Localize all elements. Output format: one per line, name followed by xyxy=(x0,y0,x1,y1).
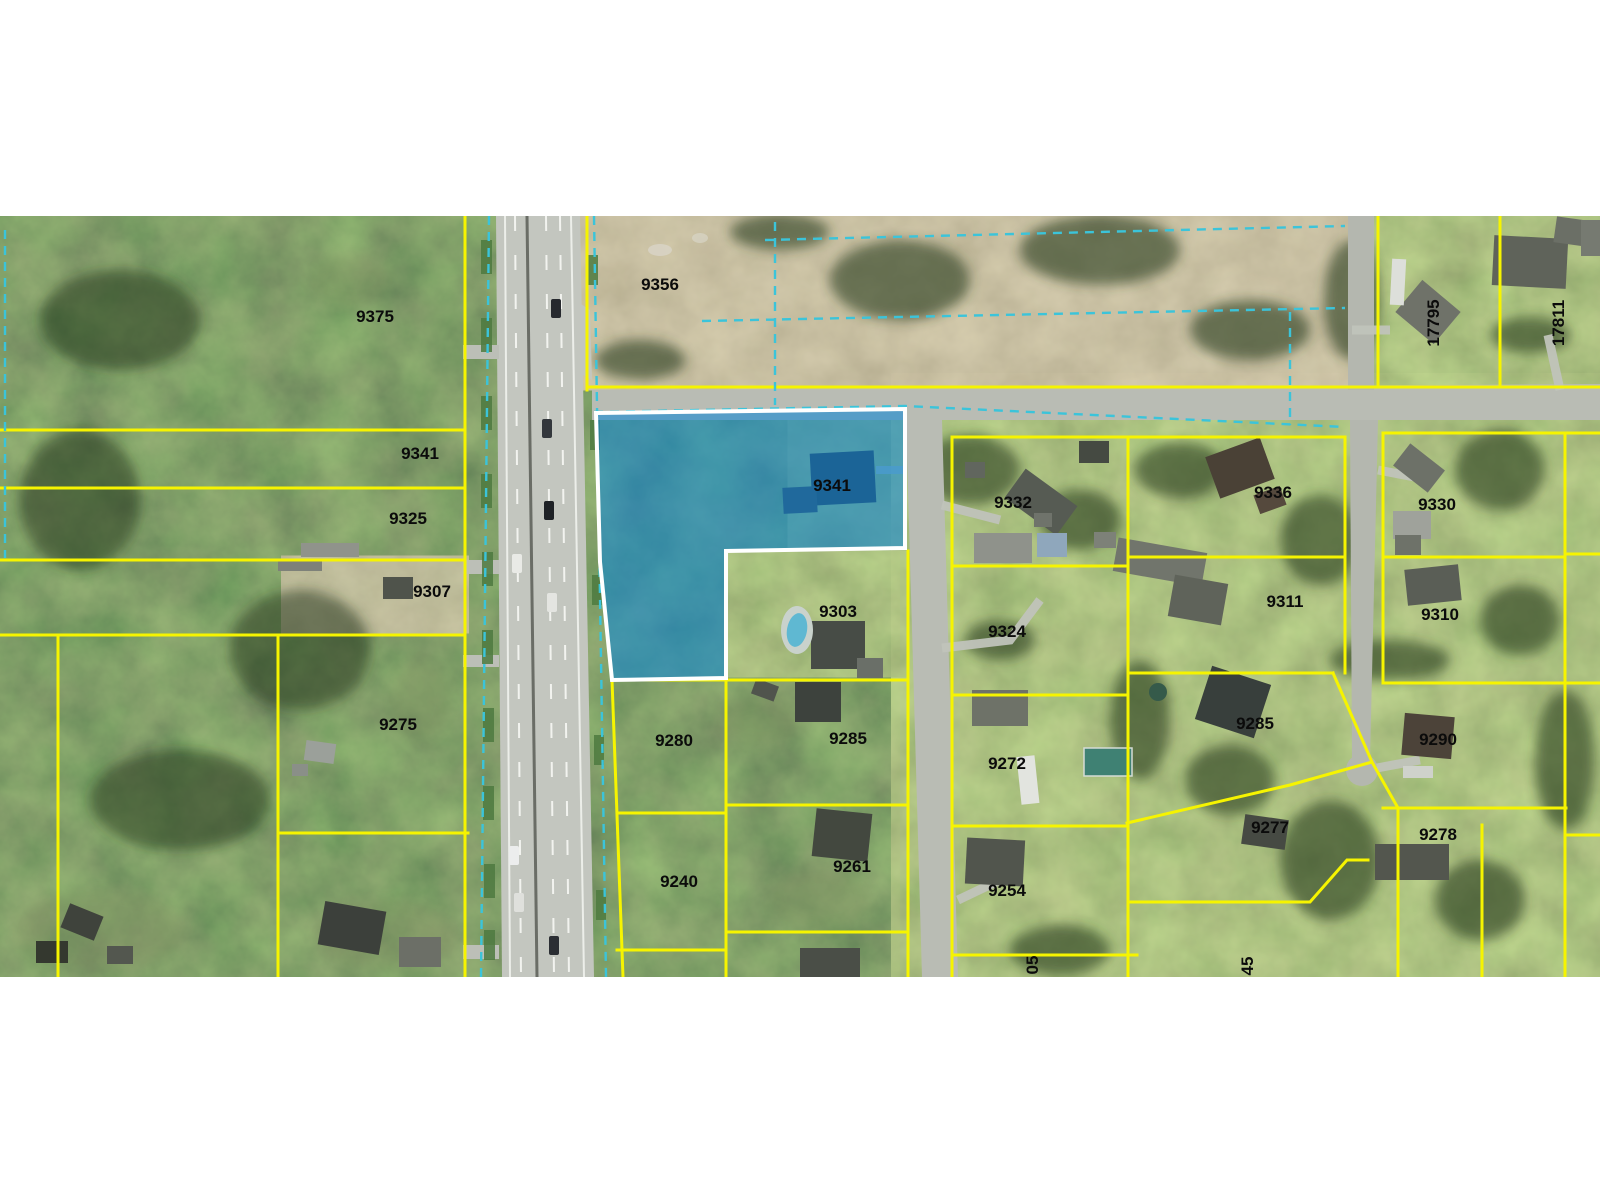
parcel-label-45-partial: 45 xyxy=(1238,957,1257,976)
parcel-label-9285-center: 9285 xyxy=(829,729,867,748)
house-9324 xyxy=(974,533,1032,563)
parcel-label-9310: 9310 xyxy=(1421,605,1459,624)
house-9254 xyxy=(965,838,1025,887)
house-17811 xyxy=(1492,235,1569,289)
parcel-label-17795: 17795 xyxy=(1424,299,1443,346)
house-9278 xyxy=(1375,844,1449,880)
house-9307 xyxy=(383,577,413,599)
parcel-label-9285-right: 9285 xyxy=(1236,714,1274,733)
parcel-label-05-partial: 05 xyxy=(1023,956,1042,975)
house-9285-center xyxy=(795,682,841,722)
parcel-label-9324: 9324 xyxy=(988,622,1026,641)
parcel-label-9325: 9325 xyxy=(389,509,427,528)
parcel-label-9336: 9336 xyxy=(1254,483,1292,502)
parcel-label-9332: 9332 xyxy=(994,493,1032,512)
greenhouse xyxy=(1084,748,1132,776)
parcel-label-9275: 9275 xyxy=(379,715,417,734)
parcel-label-9254: 9254 xyxy=(988,881,1026,900)
parcel-label-9290: 9290 xyxy=(1419,730,1457,749)
parcel-label-9307: 9307 xyxy=(413,582,451,601)
parcel-label-9277: 9277 xyxy=(1251,818,1289,837)
house-9310 xyxy=(1404,564,1461,605)
parcel-label-9330: 9330 xyxy=(1418,495,1456,514)
parcel-label-9311: 9311 xyxy=(1267,592,1304,611)
parcel-label-9278: 9278 xyxy=(1419,825,1457,844)
north-stub-road xyxy=(1348,216,1374,390)
house-9261 xyxy=(812,808,873,862)
parcel-label-9272: 9272 xyxy=(988,754,1026,773)
parcel-label-9375: 9375 xyxy=(356,307,394,326)
parcel-label-9240: 9240 xyxy=(660,872,698,891)
parcel-map: 9375 9341 9325 9307 9275 9356 9341 9303 … xyxy=(0,0,1600,1200)
aerial-parcel-map-page: 9375 9341 9325 9307 9275 9356 9341 9303 … xyxy=(0,0,1600,1200)
house-9303 xyxy=(811,621,865,669)
parcel-label-9341-subject: 9341 xyxy=(813,476,851,495)
parcel-label-9261: 9261 xyxy=(833,857,871,876)
parcel-label-9341-west: 9341 xyxy=(401,444,439,463)
culdesac-bulb xyxy=(1346,754,1378,786)
parcel-label-9356: 9356 xyxy=(641,275,679,294)
parcel-label-9280: 9280 xyxy=(655,731,693,750)
parcel-label-17811: 17811 xyxy=(1549,300,1568,346)
parcel-label-9303: 9303 xyxy=(819,602,857,621)
